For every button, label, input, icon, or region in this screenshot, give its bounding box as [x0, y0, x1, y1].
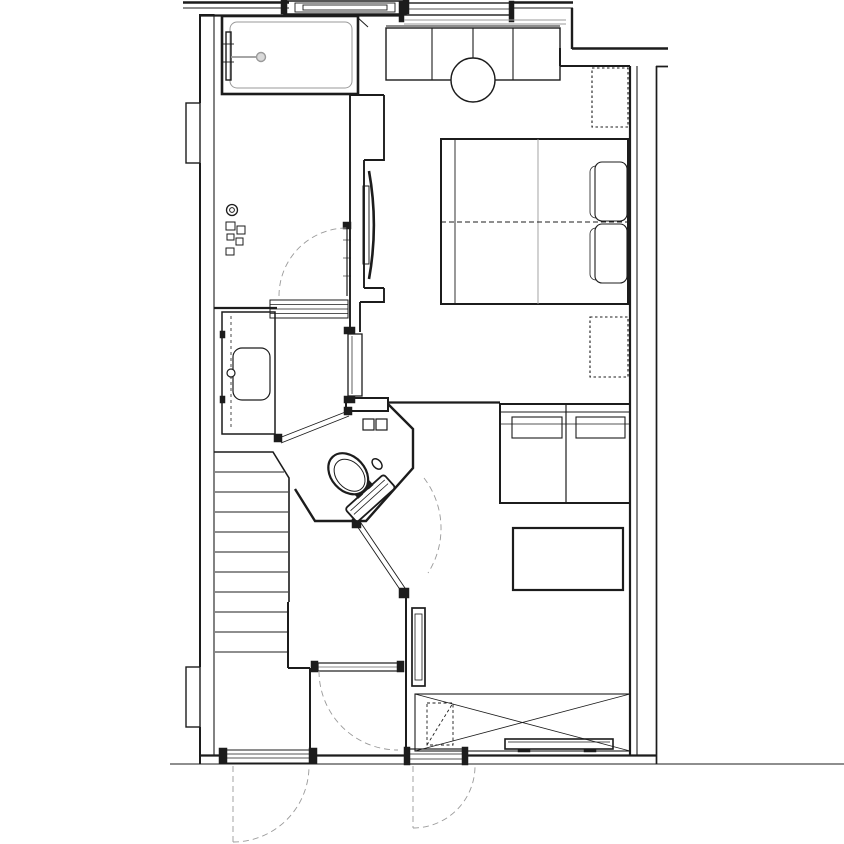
vent-window-core	[303, 5, 387, 10]
wc-door-swing-arc	[424, 478, 441, 573]
study-radiator-inner	[415, 614, 422, 680]
wardrobe-shelves	[512, 417, 562, 438]
glass-screen-upper-blocks	[274, 434, 282, 442]
sofa-side-table	[451, 58, 495, 102]
flush-plates	[363, 419, 374, 430]
bath-mixer-valves	[237, 226, 245, 234]
vent-window-jambs	[281, 0, 287, 14]
entry-door-jambs	[462, 747, 468, 765]
bath-mixer-valves	[227, 234, 234, 240]
vanity-basin	[233, 348, 270, 400]
bathtub	[222, 16, 358, 94]
vanity-ticks	[220, 396, 225, 403]
tv-wall	[350, 95, 384, 332]
entry-door-swing	[413, 766, 475, 828]
toilet-flush-valve	[370, 457, 384, 471]
french-door-jambs	[309, 748, 317, 764]
wardrobe	[500, 404, 630, 503]
study-radiator	[412, 608, 425, 686]
left-pilaster-upper	[186, 103, 200, 163]
bottom-radiator	[505, 739, 613, 749]
pillow-2	[595, 224, 627, 283]
bath-mixer-knob-inner	[230, 208, 235, 213]
french-door-frame	[226, 750, 310, 763]
french-door-swing	[233, 766, 309, 842]
desk	[513, 528, 623, 590]
bottom-radiator-feet	[518, 749, 530, 752]
glass-screen-lower	[357, 523, 407, 594]
hall-door-jambs	[397, 661, 404, 672]
bath-door-swing-arc	[279, 228, 347, 296]
bath-mixer-valves	[226, 248, 234, 255]
french-door-jambs	[219, 748, 227, 764]
bath-mixer-valves	[226, 222, 235, 230]
bath-mixer-knob	[227, 205, 238, 216]
flush-plates	[376, 419, 387, 430]
wardrobe-shelves	[576, 417, 625, 438]
stair-hall-wall	[288, 602, 310, 750]
floor-plan-canvas	[0, 0, 844, 844]
vent-window-mid	[295, 3, 395, 12]
bedroom-north-wall	[560, 48, 630, 66]
pillow-1	[595, 162, 627, 221]
vanity-ticks	[220, 331, 225, 338]
left-pilaster-lower	[186, 667, 200, 727]
shower-head	[257, 53, 266, 62]
entry-door-jambs	[404, 747, 410, 765]
bedroom-door-jambs	[344, 327, 355, 334]
bottom-radiator-feet	[584, 749, 596, 752]
tv-screen	[369, 171, 374, 279]
bedroom-window-sill	[404, 20, 566, 24]
glass-screen-lower-blocks	[399, 588, 409, 598]
bedroom-door-leaf	[348, 334, 362, 396]
stair-outline	[214, 452, 289, 602]
bathtub-basin	[230, 22, 352, 88]
floor-plan-page	[0, 0, 844, 844]
bath-mixer-valves	[236, 238, 243, 245]
party-wall-right	[656, 66, 668, 764]
glass-screen-upper	[279, 411, 349, 443]
glass-screen-upper-blocks	[344, 407, 352, 415]
vanity-drain	[227, 369, 235, 377]
bedroom-window-jambs	[509, 1, 514, 22]
wardrobe-niche-lower	[590, 317, 628, 377]
hall-door-jambs	[311, 661, 318, 672]
bedroom-door-jambs	[344, 396, 355, 403]
bedroom-window-jambs	[399, 1, 404, 22]
wardrobe-niche-upper	[592, 68, 628, 127]
hall-door-swing-arc	[319, 671, 398, 750]
step-wall	[572, 8, 668, 49]
hatch-dashed-diag	[427, 703, 453, 745]
left-wall-inner	[200, 14, 214, 755]
